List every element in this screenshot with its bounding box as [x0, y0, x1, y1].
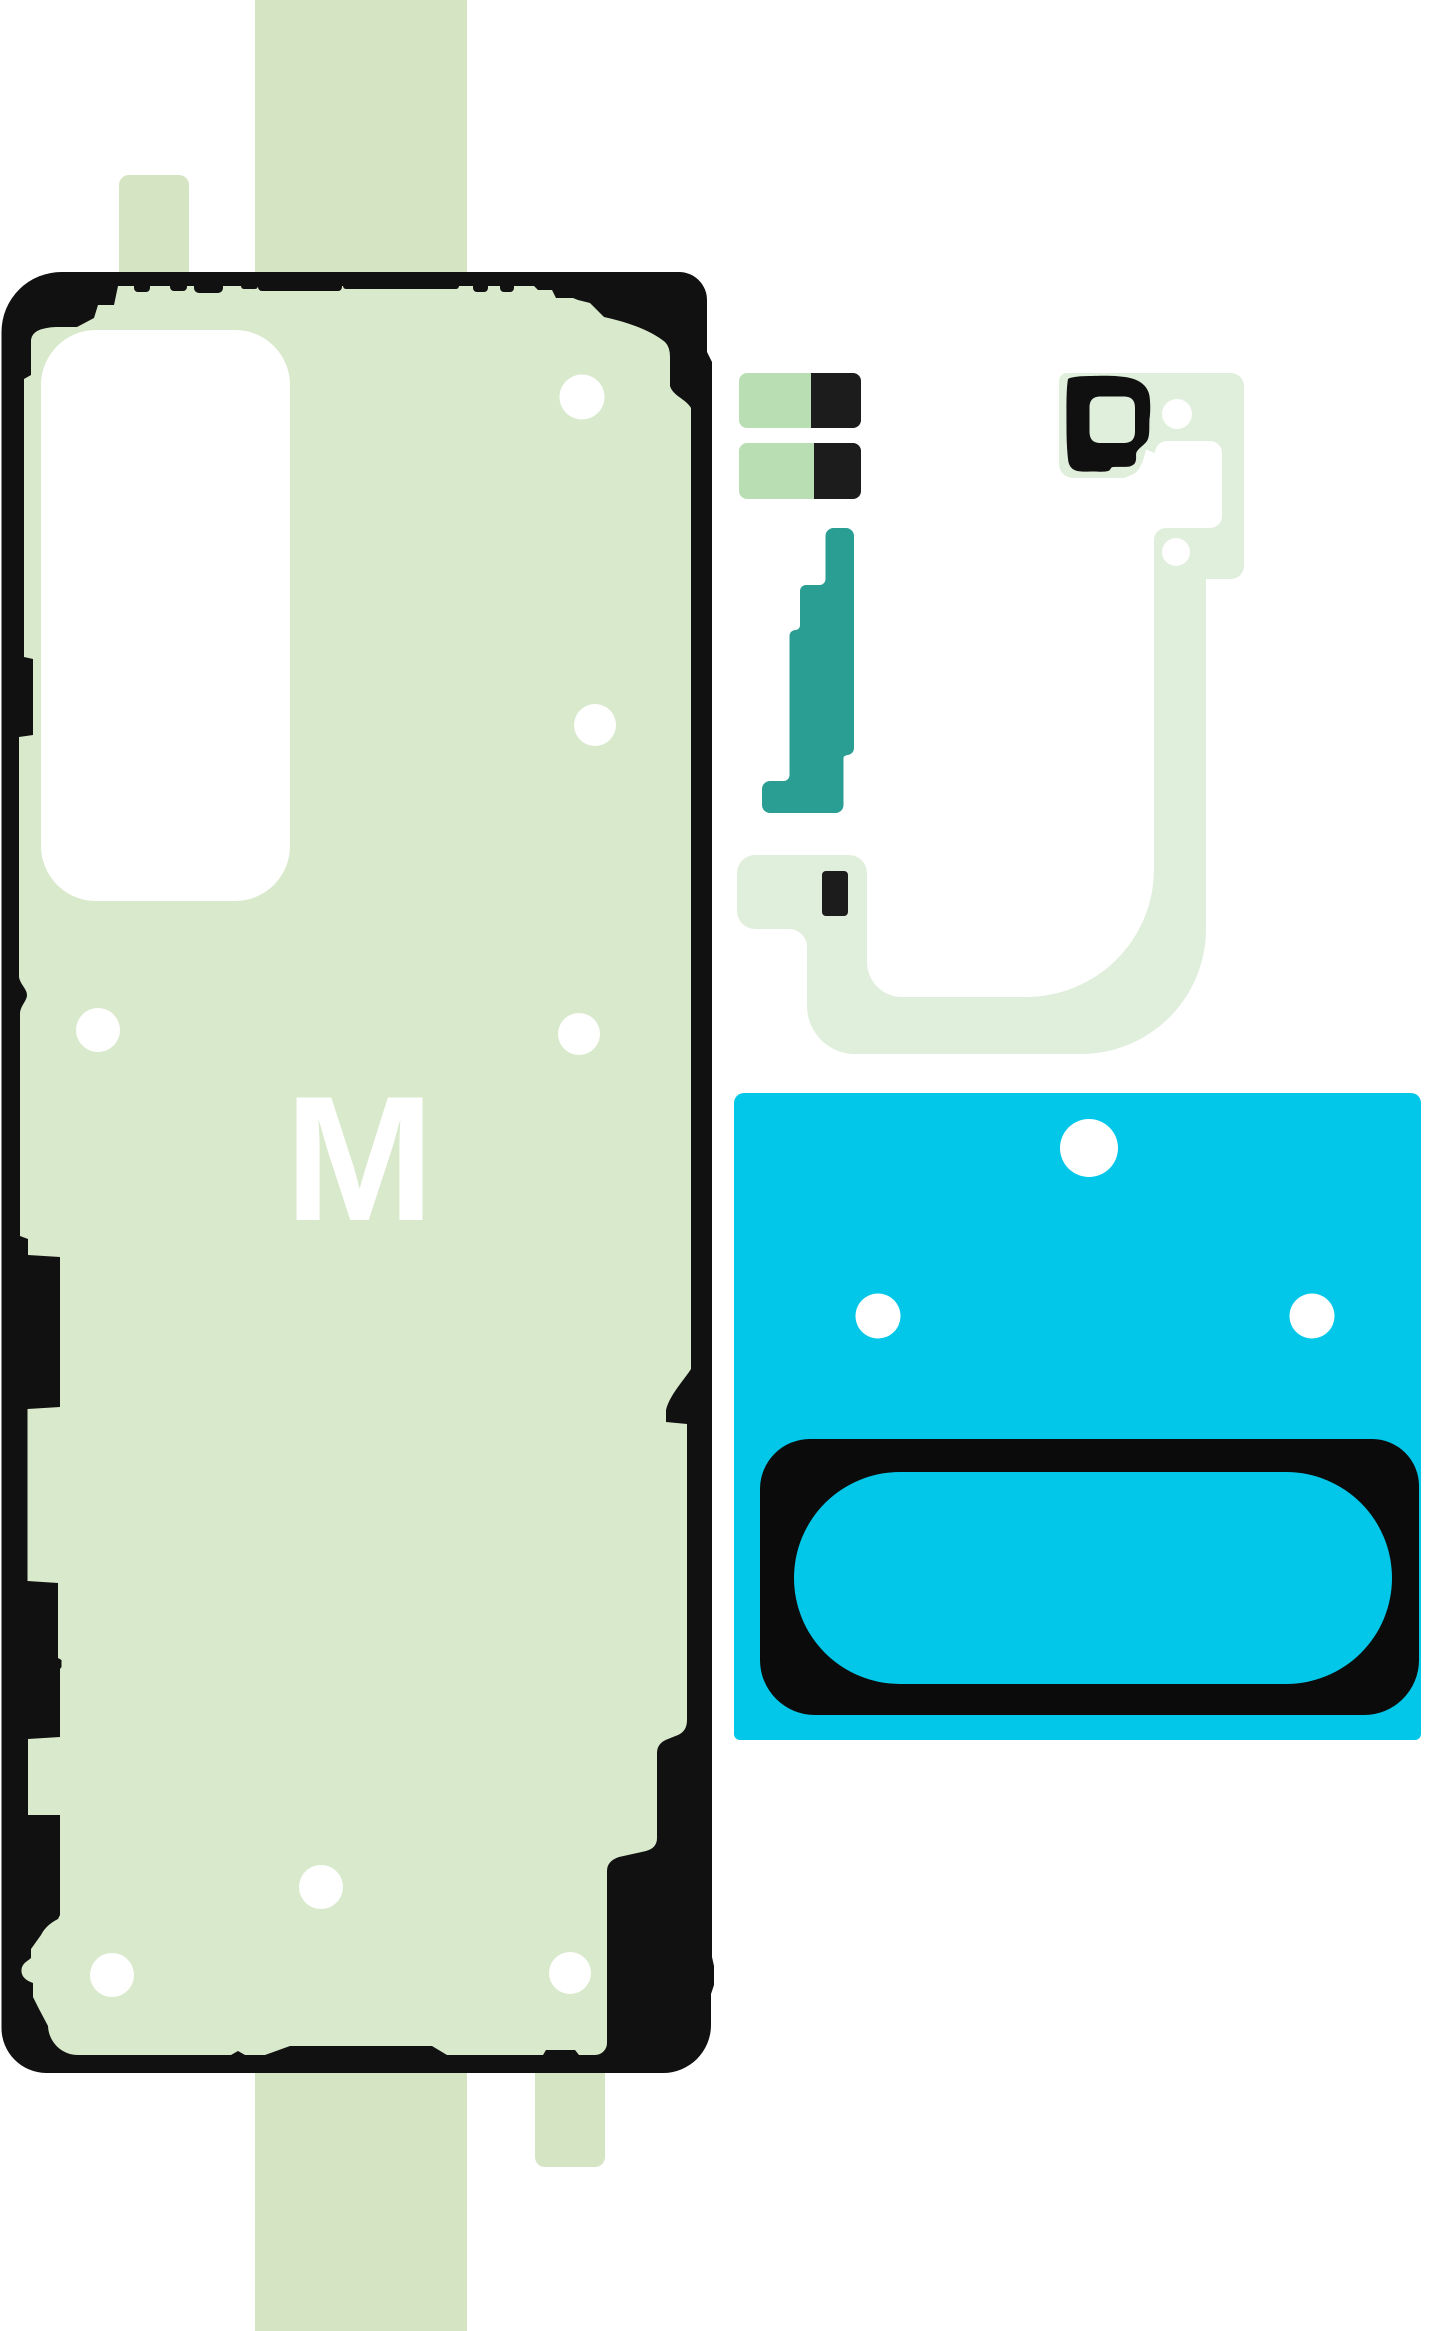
svg-text:M: M: [285, 1059, 435, 1258]
